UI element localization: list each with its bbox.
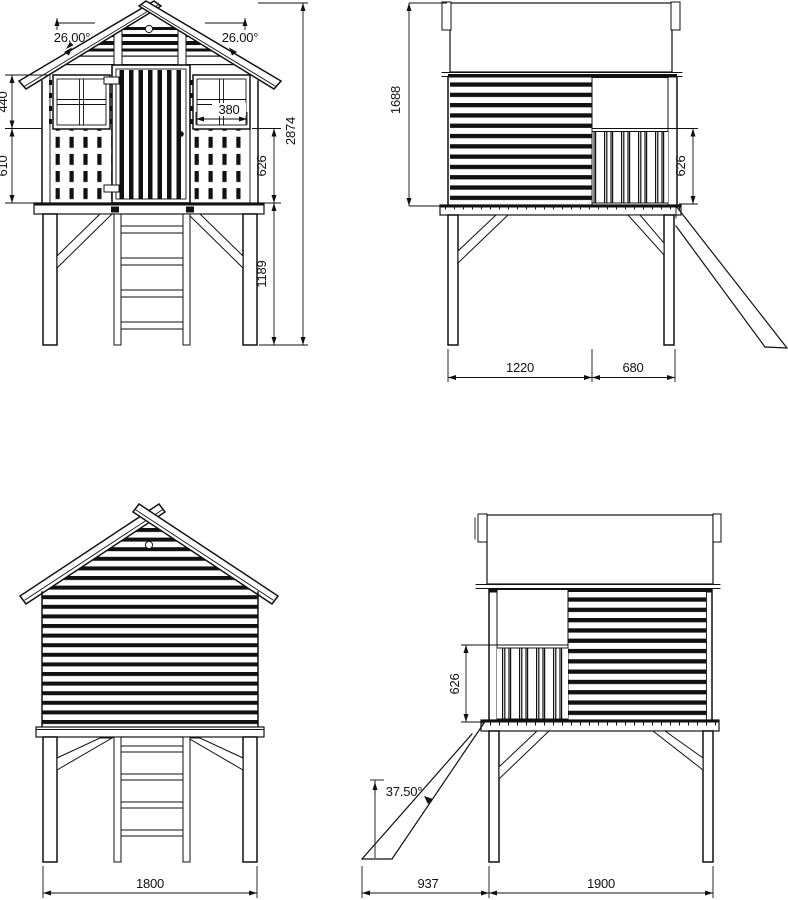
door (104, 65, 190, 203)
roof-side-left (475, 514, 721, 589)
dim-overall-width: 1800 (136, 876, 164, 891)
window-left (53, 75, 110, 129)
porch-opening (497, 590, 568, 646)
dim-railing-height: 626 (447, 673, 462, 694)
door-hinge-bottom (104, 185, 119, 192)
drawing-sheet: 440 610 626 1189 2874 380 26.00° (0, 0, 788, 900)
side-left-view: 626 37.50° 937 1900 (362, 514, 721, 898)
dim-wall-lower-height: 626 (254, 155, 269, 176)
dim-roof-angle-left: 26.00° (54, 30, 91, 45)
dim-porch-section-length: 680 (622, 360, 643, 375)
porch-opening (592, 78, 668, 129)
dim-frame-depth: 1900 (587, 876, 615, 891)
technical-drawing: 440 610 626 1189 2874 380 26.00° (0, 0, 788, 900)
slide-left (362, 723, 484, 859)
balustrade-right (190, 129, 250, 203)
dim-slide-angle: 37.50° (386, 784, 423, 799)
brace-left (57, 738, 112, 770)
platform-side-right (440, 205, 681, 215)
dim-house-height: 1688 (388, 86, 403, 114)
gable-vent-hole (145, 25, 152, 32)
front-view: 440 610 626 1189 2874 380 26.00° (0, 1, 308, 345)
dim-overall-height: 2874 (283, 117, 298, 145)
dim-roof-angle-right: 26.00° (222, 30, 259, 45)
brace-right (628, 215, 664, 255)
door-knob (178, 131, 184, 137)
ladder-front (114, 214, 190, 345)
brace-right (188, 214, 243, 268)
rear-view: 1800 (20, 504, 280, 898)
dim-window-width: 380 (218, 102, 239, 117)
side-right-view: 1688 626 1220 680 (388, 2, 787, 382)
dim-window-band-height: 440 (0, 91, 10, 112)
rear-dimensions: 1800 (43, 866, 257, 898)
brace-left (499, 731, 549, 779)
brace-right (653, 731, 703, 770)
dim-balustrade-band-height: 610 (0, 155, 10, 176)
dim-stilt-height: 1189 (254, 260, 269, 287)
gable-vent-hole (145, 541, 152, 548)
dim-slide-run: 937 (417, 876, 438, 891)
brace-left (458, 215, 508, 263)
brace-right (188, 738, 243, 770)
brace-left (57, 214, 112, 268)
platform-side-left (481, 720, 719, 731)
platform-rear (36, 727, 264, 737)
wall-planks (568, 592, 706, 719)
wall-side-left (489, 589, 712, 720)
porch-railing (594, 132, 669, 204)
platform-front (34, 203, 264, 214)
slide-right (668, 206, 787, 348)
roof-side (442, 2, 682, 77)
porch-railing (497, 648, 568, 719)
door-hinge-top (104, 77, 119, 84)
wall-side-right (448, 74, 677, 205)
wall-planks (450, 78, 592, 205)
dim-railing-height: 626 (673, 155, 688, 176)
ladder-rear (114, 737, 190, 862)
balustrade-left (50, 129, 112, 203)
dim-wall-section-length: 1220 (506, 360, 534, 375)
